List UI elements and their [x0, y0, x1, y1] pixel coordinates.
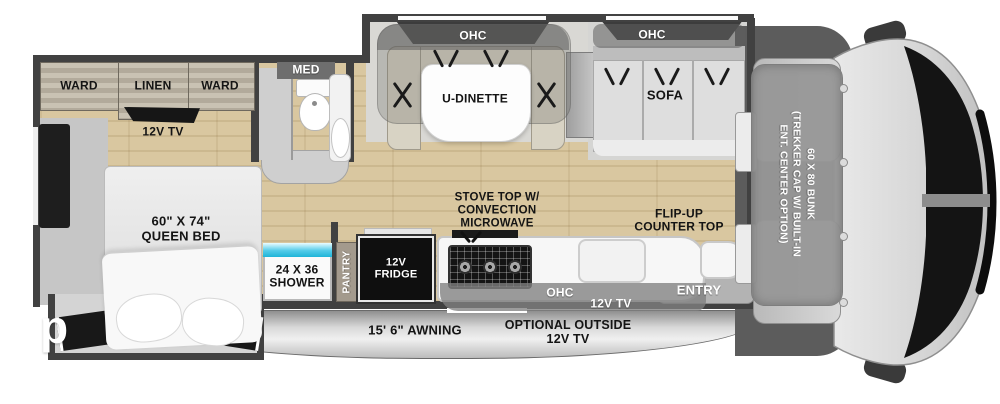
entry-label: ENTRY: [677, 284, 722, 299]
seat-stitch-icon: [479, 48, 513, 70]
ward-left-label: WARD: [60, 79, 97, 92]
sofa-divider: [692, 60, 694, 140]
burner-icon: [483, 260, 497, 274]
sofa-front-edge: [593, 140, 745, 156]
flip-counter-label: FLIP-UP COUNTER TOP: [634, 208, 723, 235]
shower-label: 24 X 36 SHOWER: [269, 264, 324, 291]
seat-stitch-icon: [390, 80, 416, 110]
bunk-label: 60 X 80 BUNK (TREKKER CAP W/ BUILT-IN EN…: [776, 66, 817, 302]
stove-label: STOVE TOP W/ CONVECTION MICROWAVE: [455, 192, 540, 231]
sofa-divider: [642, 60, 644, 140]
watermark: p: [40, 300, 68, 354]
burner-icon: [508, 260, 522, 274]
bath-door-panel: [259, 68, 293, 160]
cap-hinge-icon: [839, 232, 848, 241]
bed-label: 60" X 74" QUEEN BED: [141, 214, 220, 243]
cap-hinge-icon: [839, 84, 848, 93]
sofa-ohc-band: [593, 24, 745, 48]
slide-window-slit: [606, 16, 738, 20]
awning-label: 15' 6" AWNING: [368, 324, 462, 339]
wall: [362, 14, 370, 63]
kitchen-ohc-label: OHC: [546, 286, 573, 299]
kitchen-sink: [578, 239, 646, 283]
slide-window-slit: [398, 16, 546, 20]
seat-stitch-icon: [700, 66, 734, 88]
seat-stitch-icon: [650, 66, 684, 88]
cap-hinge-icon: [839, 298, 848, 307]
toilet-flush-dot: [312, 101, 317, 106]
bedroom-tv: [124, 107, 200, 123]
sofa-ohc-label: OHC: [638, 28, 665, 41]
cab-nose: [830, 18, 998, 386]
seat-stitch-icon: [534, 80, 560, 110]
pantry-label: PANTRY: [341, 251, 352, 294]
dinette-label: U-DINETTE: [442, 92, 508, 105]
seat-stitch-icon: [600, 66, 634, 88]
outside-tv-label: OPTIONAL OUTSIDE 12V TV: [505, 318, 632, 346]
med-label: MED: [292, 63, 319, 76]
kitchen-tv-label: 12V TV: [590, 297, 631, 310]
burner-icon: [458, 260, 472, 274]
bath-sink: [331, 118, 350, 158]
sofa-label: SOFA: [647, 89, 683, 104]
left-wall-window: [39, 124, 70, 228]
rv-floor-plan: 15' 6" AWNING OPTIONAL OUTSIDE 12V TV WA…: [0, 0, 1000, 404]
seat-stitch-icon: [429, 48, 463, 70]
bedroom-tv-label: 12V TV: [142, 125, 183, 138]
ward-right-label: WARD: [201, 79, 238, 92]
left-window-slit: [33, 127, 38, 225]
stove-arrow-icon: [460, 230, 482, 245]
cap-hinge-icon: [839, 158, 848, 167]
fridge-label: 12V FRIDGE: [375, 257, 418, 282]
toilet-bowl: [299, 93, 331, 131]
shower-glass: [263, 243, 332, 257]
hood-split: [922, 194, 990, 207]
dinette-ohc-label: OHC: [459, 29, 486, 42]
linen-label: LINEN: [135, 79, 172, 92]
